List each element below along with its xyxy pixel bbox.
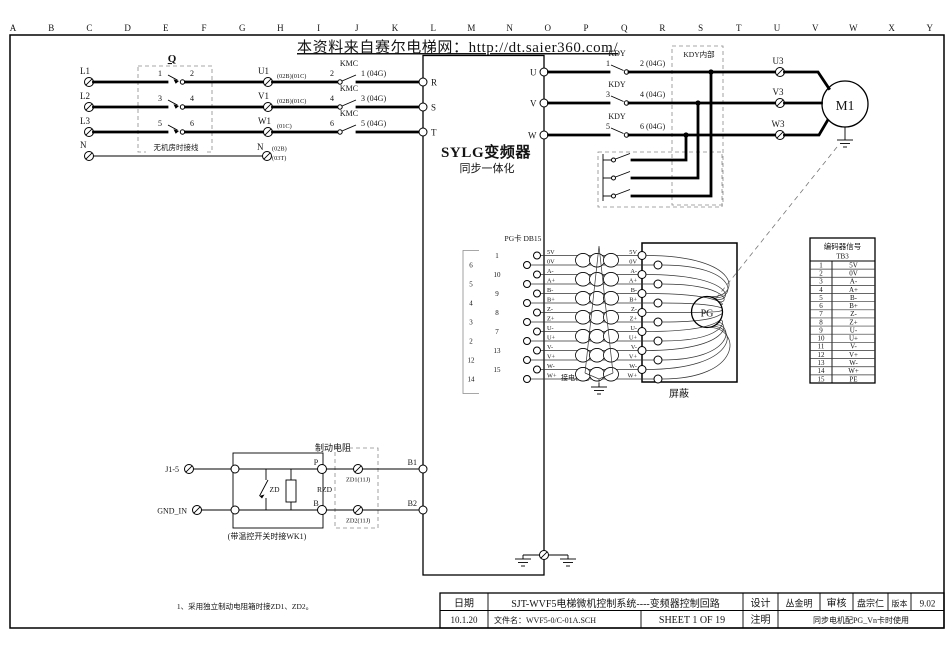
signal-label: A- (630, 268, 637, 275)
contact-number: 4 (330, 94, 334, 103)
breaker-label: Q (168, 53, 177, 65)
signal-label: V- (547, 344, 553, 351)
contact-number: 1 (606, 59, 610, 68)
motor-label: M1 (836, 98, 855, 113)
review-label: 审核 (827, 597, 847, 610)
shield-terminal (638, 366, 646, 374)
twisted-pair (604, 329, 619, 343)
pin-number: 4 (469, 300, 473, 308)
relay-label: KDY (608, 49, 626, 58)
tb3-pin: 12 (818, 351, 826, 359)
shield-terminal (638, 309, 646, 317)
twisted-pair (576, 310, 591, 324)
motor-feed-wire (785, 121, 828, 136)
b-label: B (313, 499, 318, 508)
grid-letter: V (812, 23, 819, 33)
inverter-pe (523, 551, 568, 560)
grid-letter: K (392, 23, 399, 33)
thermal-switch-blade (260, 480, 269, 496)
contact-number: 4 (190, 94, 194, 103)
pin-number: 9 (495, 290, 499, 298)
contact-blade (611, 96, 624, 102)
signal-label: V+ (629, 354, 638, 361)
neutral-end-label: N (257, 142, 264, 152)
tb3-pin: 11 (818, 343, 825, 351)
source-label: L3 (80, 116, 90, 126)
pin-number: 8 (495, 309, 499, 317)
tb3-signal: V+ (849, 351, 858, 359)
schematic-page: ABCDEFGHIJKLMNOPQRSTUVWXY 本资料来自赛尔电梯网：htt… (0, 0, 950, 672)
pin-number: 5 (469, 281, 473, 289)
twisted-pair (604, 367, 619, 381)
db15-pin (534, 271, 541, 278)
contact-number: 1 (04G) (361, 69, 386, 78)
signal-label: U- (630, 325, 637, 332)
grid-letter: M (467, 23, 475, 33)
db15-pin (524, 319, 531, 326)
terminal-uvw (540, 99, 548, 107)
tb3-signal: U- (850, 326, 858, 334)
signal-label: Z+ (630, 316, 638, 323)
title-block: 日期 10.1.20 SJT-WVF5电梯微机控制系统----变频器控制回路 文… (440, 593, 944, 628)
design-label: 设计 (751, 597, 771, 610)
db15-pin (524, 376, 531, 383)
tb3-pin: 6 (819, 302, 823, 310)
contact-blade (611, 65, 624, 71)
db15-pin (534, 309, 541, 316)
twisted-pair (604, 291, 619, 305)
mid-label: W1 (258, 116, 271, 126)
sheet-title: SJT-WVF5电梯微机控制系统----变频器控制回路 (511, 597, 720, 610)
inverter-title: SYLG变频器 (441, 143, 531, 161)
signal-label: 0V (629, 259, 637, 266)
drawing-border (10, 35, 944, 628)
grid-letter: N (506, 23, 513, 33)
contact-pivot (180, 130, 184, 134)
signal-label: Z- (631, 306, 637, 313)
terminal-p (318, 465, 327, 474)
db15-pin (534, 347, 541, 354)
twisted-pair (576, 253, 591, 267)
breaker-blade (168, 100, 178, 105)
tb3-signal: W+ (848, 367, 859, 375)
terminal-b1 (419, 465, 427, 473)
twisted-pair (576, 291, 591, 305)
terminal-rst (419, 103, 427, 111)
contact-blade (616, 154, 631, 160)
shield-terminal (638, 328, 646, 336)
tb3-signal: A- (850, 278, 858, 286)
grid-letter: T (736, 23, 742, 33)
twisted-pair (576, 348, 591, 362)
version-label: 版本 (892, 599, 908, 609)
rst-label: R (431, 78, 437, 88)
grid-letter: E (163, 23, 169, 33)
shield-terminal (654, 280, 662, 288)
contact-number: 3 (04G) (361, 94, 386, 103)
contact-number: 6 (04G) (640, 122, 665, 131)
grid-letter-row: ABCDEFGHIJKLMNOPQRSTUVWXY (10, 23, 934, 33)
remark-label: 注明 (751, 613, 771, 626)
schematic-canvas: ABCDEFGHIJKLMNOPQRSTUVWXY 本资料来自赛尔电梯网：htt… (0, 0, 950, 672)
terminal-uvw (540, 68, 548, 76)
j1-5-label: J1-5 (165, 465, 179, 474)
signal-label: B+ (547, 297, 555, 304)
contact-number: 6 (190, 119, 194, 128)
contact-number: 2 (330, 69, 334, 78)
signal-label: Z- (547, 306, 553, 313)
brake-caption: (带温控开关时接WK1) (228, 531, 307, 541)
pin-number: 7 (495, 328, 499, 336)
dest-label: W3 (772, 119, 785, 129)
grid-letter: S (698, 23, 703, 33)
contact-blade (342, 100, 356, 106)
pg-card-header: PG卡 DB15 (505, 233, 542, 243)
contact-blade (342, 125, 356, 131)
contact-number: 5 (606, 122, 610, 131)
encoder-label: PG (701, 309, 714, 320)
tb3-pin: 3 (819, 278, 823, 286)
tb3-signal: W- (849, 359, 858, 367)
tb3-pin: 2 (819, 270, 823, 278)
shield-label: 屏蔽 (669, 388, 689, 400)
grid-letter: U (774, 23, 781, 33)
contact-number: 3 (606, 90, 610, 99)
zd2-label: ZD2(11J) (346, 518, 370, 525)
file-name: 文件名：WVF5-0/C-01A.SCH (494, 615, 596, 625)
zd1-label: ZD1(11J) (346, 477, 370, 484)
relay-label: KDY (608, 112, 626, 121)
grid-letter: C (86, 23, 92, 33)
shield-terminal (654, 356, 662, 364)
tb3-signal: V- (850, 343, 857, 351)
contact-blade (342, 75, 356, 81)
grid-letter: J (355, 23, 359, 33)
pin-number: 13 (494, 347, 502, 355)
grid-letter: G (239, 23, 246, 33)
brake-circuit: 制动电阻 J1-5 GND_IN ZD RZD P B ZD1(11J) (157, 442, 427, 541)
tb3-title: 编码器信号 (824, 241, 862, 251)
contact-number: 2 (04G) (640, 59, 665, 68)
grid-letter: Y (927, 23, 934, 33)
zd-dashed-box (335, 448, 378, 528)
tb3-signal: A+ (849, 286, 858, 294)
gnd-in-label: GND_IN (157, 507, 187, 516)
tb3-signal: 5V (849, 261, 858, 269)
shield-terminal (638, 347, 646, 355)
uvw-label: V (530, 99, 537, 109)
dest-label: V3 (773, 87, 784, 97)
grid-letter: B (48, 23, 54, 33)
signal-label: A+ (629, 278, 638, 285)
brake-title: 制动电阻 (315, 442, 351, 453)
tb3-signal: B+ (849, 302, 858, 310)
grid-letter: I (317, 23, 320, 33)
tb3-pin: 1 (819, 261, 823, 269)
terminal-b (318, 506, 327, 515)
db15-pin (524, 300, 531, 307)
contact-pivot (612, 158, 616, 162)
star-short-wire (632, 135, 686, 160)
tb3-pin: 8 (819, 318, 823, 326)
zd-label: ZD (270, 485, 281, 494)
tb3-pin: 7 (819, 310, 823, 318)
signal-label: B- (547, 287, 553, 294)
grid-letter: D (124, 23, 131, 33)
signal-label: 0V (547, 259, 555, 266)
wire-note: (02B)(01C) (277, 98, 306, 105)
shield-terminal (638, 252, 646, 260)
twisted-pair (590, 348, 605, 362)
neutral-note-top: (02B) (272, 146, 287, 153)
contact-blade (611, 128, 624, 134)
shield-terminal (654, 375, 662, 383)
tb3-name: TB3 (836, 253, 849, 261)
rst-label: T (431, 128, 437, 138)
contact-pivot (612, 194, 616, 198)
tb3-signal: PE (849, 375, 857, 383)
relay-label: KMC (340, 84, 358, 93)
db15-pin (524, 262, 531, 269)
contact-pivot (612, 176, 616, 180)
junction (231, 465, 239, 473)
twisted-pair (590, 367, 605, 381)
twisted-pair (604, 310, 619, 324)
tb3-pin: 4 (819, 286, 823, 294)
terminal-b2 (419, 506, 427, 514)
db15-pin (524, 357, 531, 364)
resistor-body (286, 480, 296, 502)
signal-label: A- (547, 268, 554, 275)
neutral-note-bottom: (03T) (272, 155, 286, 162)
breaker-blade (168, 75, 178, 80)
inverter-body (423, 56, 544, 576)
contact-number: 2 (190, 69, 194, 78)
contact-number: 5 (04G) (361, 119, 386, 128)
b1-label: B1 (408, 458, 417, 467)
tb3-pin: 14 (818, 367, 826, 375)
contact-pivot (180, 105, 184, 109)
signal-label: B+ (629, 297, 637, 304)
pin-number: 1 (495, 252, 499, 260)
twisted-pair (576, 272, 591, 286)
pin-number: 2 (469, 338, 473, 346)
signal-label: B- (631, 287, 637, 294)
shield-terminal (638, 271, 646, 279)
wire-note: (01C) (277, 123, 292, 130)
wire-note: (02B)(01C) (277, 73, 306, 80)
twisted-pair (590, 291, 605, 305)
tb3-signal: Z+ (849, 318, 857, 326)
shield-terminal (654, 318, 662, 326)
source-label: L1 (80, 66, 90, 76)
grid-letter: P (583, 23, 588, 33)
pin-number: 15 (494, 366, 502, 374)
twisted-pair (590, 329, 605, 343)
mid-label: V1 (258, 91, 269, 101)
db15-pin (534, 328, 541, 335)
contact-pivot (180, 80, 184, 84)
signal-label: Z+ (547, 316, 555, 323)
twisted-pair (604, 253, 619, 267)
terminal-uvw (540, 131, 548, 139)
contact-pivot (338, 130, 342, 134)
pin-number: 6 (469, 262, 473, 270)
grid-letter: H (277, 23, 284, 33)
generated-layer: L112U1(02B)(01C)KMC21 (04G)RL234V1(02B)(… (80, 49, 875, 566)
uvw-label: U (530, 68, 537, 78)
contact-blade (616, 190, 631, 196)
signal-label: V+ (547, 354, 556, 361)
signal-label: U+ (629, 335, 638, 342)
db15-pin (524, 338, 531, 345)
contact-number: 5 (158, 119, 162, 128)
designer-name: 丛金明 (785, 598, 812, 609)
mid-label: U1 (258, 66, 269, 76)
neutral-src-label: N (80, 140, 87, 150)
db15-pin (534, 366, 541, 373)
db15-pin (524, 281, 531, 288)
footnote: 1、采用独立制动电阻箱时接ZD1、ZD2。 (177, 601, 313, 611)
source-label: L2 (80, 91, 90, 101)
dest-label: U3 (773, 56, 784, 66)
uvw-label: W (528, 131, 537, 141)
relay-label: KMC (340, 109, 358, 118)
junction (231, 506, 239, 514)
reviewer-name: 盘宗仁 (857, 598, 884, 609)
pin-number: 14 (468, 376, 476, 384)
grid-letter: A (10, 23, 17, 33)
tb3-signal: U+ (849, 335, 858, 343)
signal-label: W+ (547, 373, 557, 380)
tb3-pin: 10 (818, 335, 826, 343)
sheet-number: SHEET 1 OF 19 (659, 615, 725, 626)
terminal-rst (419, 128, 427, 136)
terminal-rst (419, 78, 427, 86)
signal-label: 5V (547, 249, 555, 256)
relay-label: KMC (340, 59, 358, 68)
contact-number: 1 (158, 69, 162, 78)
twisted-pair (604, 272, 619, 286)
grid-letter: Q (621, 23, 628, 33)
grid-letter: X (888, 23, 895, 33)
signal-label: A+ (547, 278, 556, 285)
pin-number: 10 (494, 271, 502, 279)
pin-number: 12 (468, 357, 476, 365)
shield-terminal (638, 290, 646, 298)
b2-label: B2 (408, 499, 417, 508)
db15-pin (534, 252, 541, 259)
grid-letter: R (659, 23, 665, 33)
rst-label: S (431, 103, 436, 113)
grid-letter: L (430, 23, 436, 33)
contact-number: 6 (330, 119, 334, 128)
pin-number: 3 (469, 319, 473, 327)
signal-label: 5V (629, 249, 637, 256)
contact-number: 3 (158, 94, 162, 103)
contact-blade (616, 172, 631, 178)
signal-label: U+ (547, 335, 556, 342)
grid-letter: F (201, 23, 206, 33)
tb3-signal: Z- (850, 310, 857, 318)
shield-terminal (654, 261, 662, 269)
tb3-pin: 5 (819, 294, 823, 302)
machine-roomless-note: 无机房时接线 (154, 142, 199, 152)
rzd-label: RZD (317, 485, 333, 494)
version-value: 9.02 (920, 599, 936, 609)
tb3-signal: B- (850, 294, 858, 302)
remark-value: 同步电机配PG_Vn卡时使用 (813, 615, 909, 625)
tb3-pin: 15 (818, 375, 826, 383)
relay-label: KDY (608, 80, 626, 89)
watermark-text: 本资料来自赛尔电梯网：http://dt.saier360.com/ (297, 39, 618, 56)
db15-pin (534, 290, 541, 297)
contact-number: 4 (04G) (640, 90, 665, 99)
grid-letter: O (545, 23, 552, 33)
signal-label: W+ (628, 373, 638, 380)
encoder-wire (662, 320, 723, 341)
signal-label: U- (547, 325, 554, 332)
tb3-pin: 9 (819, 326, 823, 334)
shield-terminal (654, 299, 662, 307)
star-short-wire (632, 103, 698, 178)
breaker-blade (168, 125, 178, 130)
motor-feed-wire (785, 72, 830, 89)
shield-terminal (654, 337, 662, 345)
kdy-internal-label: KDY内部 (683, 49, 715, 59)
signal-label: W- (629, 363, 637, 370)
date-label: 日期 (454, 598, 474, 610)
p-label: P (314, 458, 319, 467)
signal-label: W- (547, 363, 555, 370)
grid-letter: W (849, 23, 858, 33)
signal-label: V- (631, 344, 637, 351)
tb3-signal: 0V (849, 270, 858, 278)
tb3-pin: 13 (818, 359, 826, 367)
date-value: 10.1.20 (451, 615, 479, 625)
inverter-subtitle: 同步一体化 (460, 161, 515, 175)
